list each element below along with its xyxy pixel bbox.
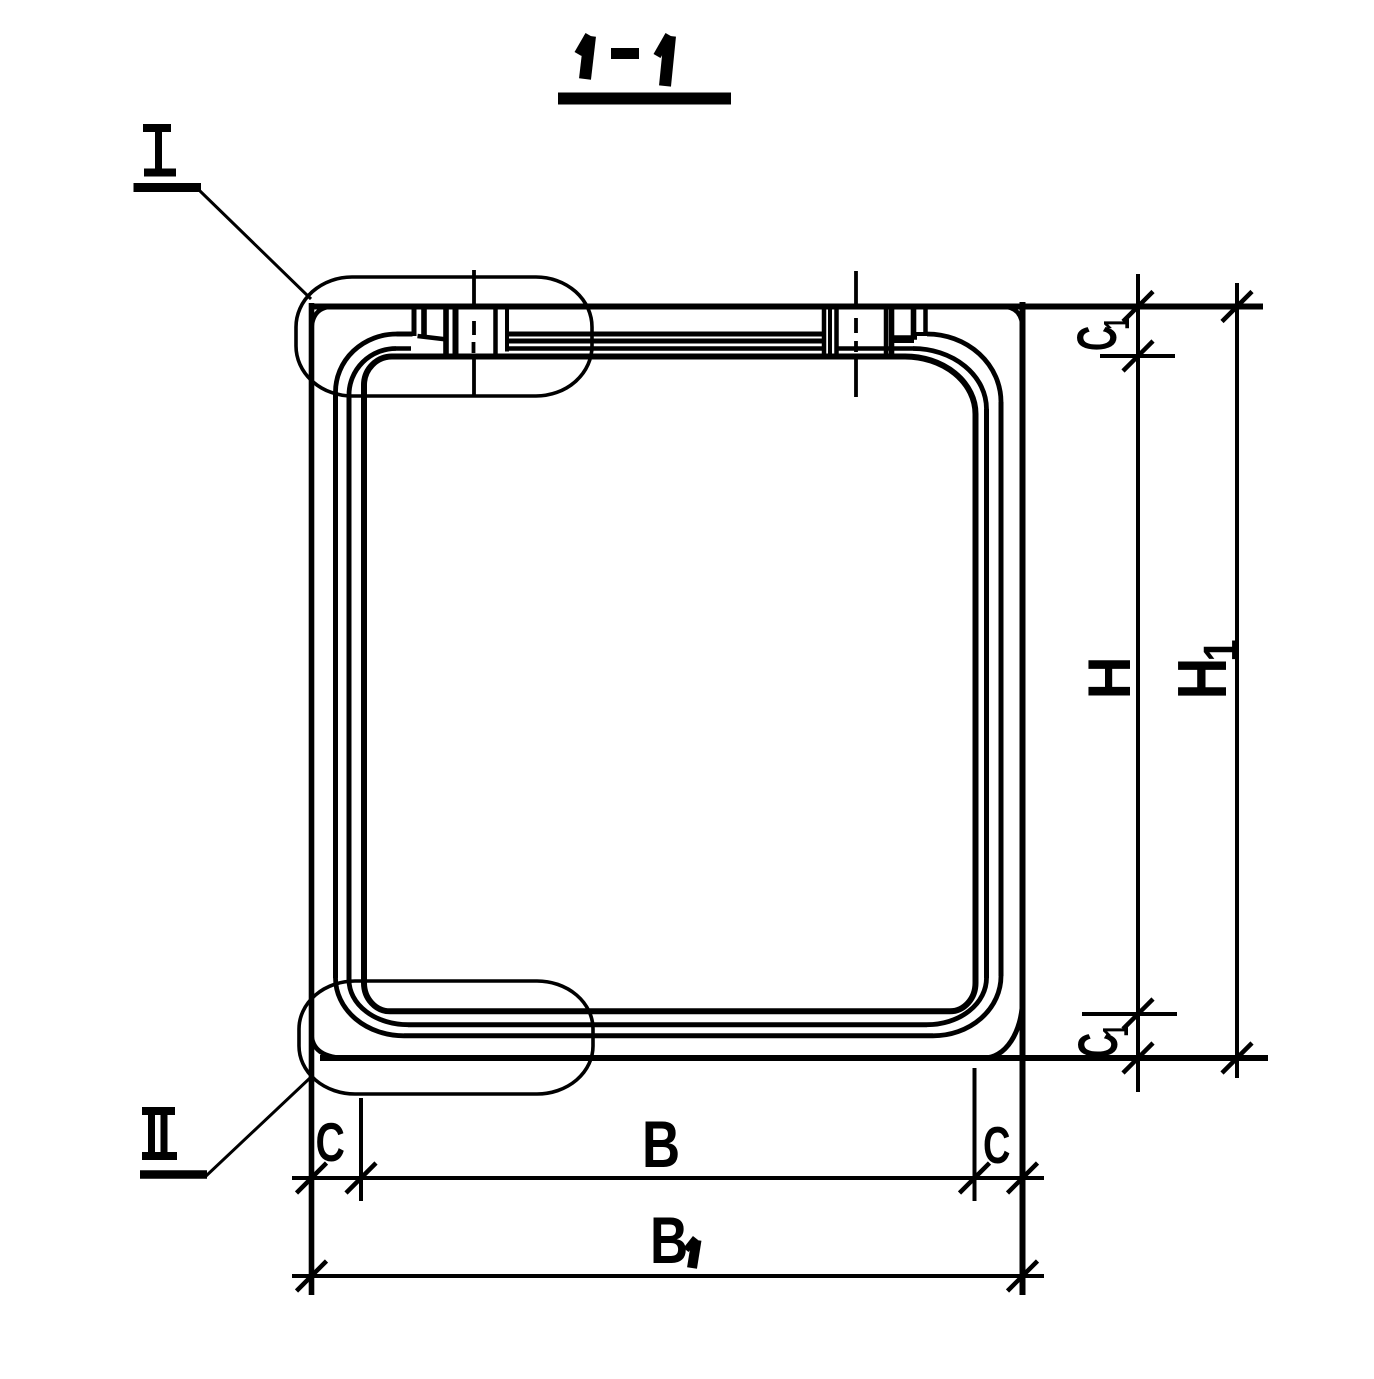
svg-text:C: C bbox=[983, 1116, 1010, 1174]
svg-text:H: H bbox=[1076, 656, 1143, 699]
svg-text:C1: C1 bbox=[1066, 317, 1138, 351]
svg-text:H1: H1 bbox=[1163, 639, 1248, 699]
svg-text:C: C bbox=[316, 1112, 345, 1173]
svg-text:B: B bbox=[650, 1203, 688, 1277]
svg-text:B: B bbox=[642, 1107, 680, 1181]
svg-text:C1: C1 bbox=[1067, 1024, 1137, 1058]
